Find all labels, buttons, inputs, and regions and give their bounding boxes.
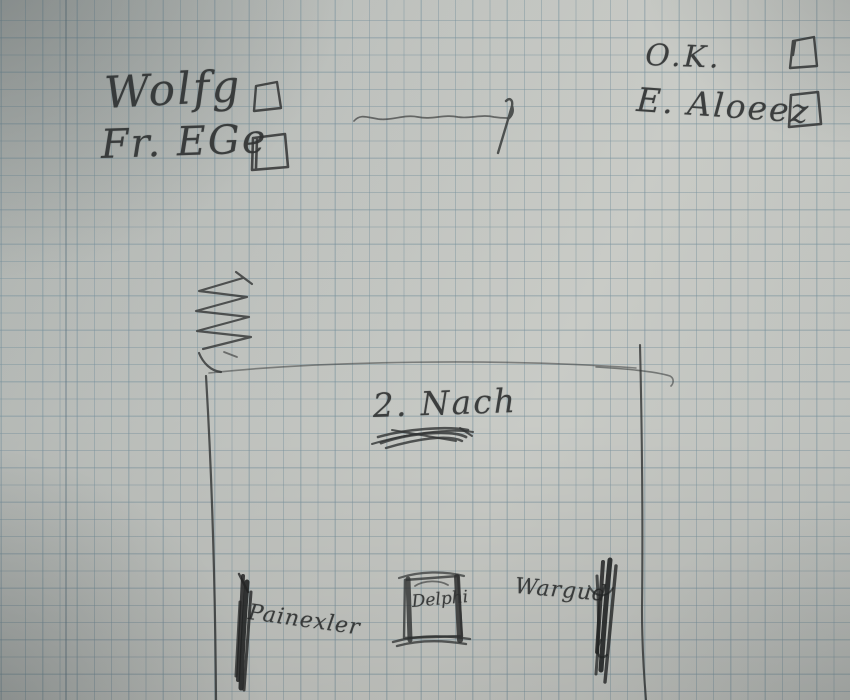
plan-right-edge	[640, 345, 646, 700]
wavy-arrow-line	[354, 116, 507, 121]
pencil-sketch-layer	[0, 0, 850, 700]
left-heavy-scribble	[236, 574, 251, 690]
plan-top-edge-extension	[596, 367, 673, 386]
crossed-out-word-scribble	[372, 428, 473, 448]
checkbox-icon	[252, 134, 288, 170]
paper-photo: Wolfg Fr. EGe O.K. E. Aloeez 2. Nach Pai…	[0, 0, 850, 700]
zigzag-scribble	[196, 272, 252, 372]
checkbox-icon	[789, 92, 821, 127]
right-heavy-scribble	[589, 560, 616, 682]
delphi-box	[393, 572, 470, 646]
checkbox-icon	[254, 82, 281, 111]
plan-corner-tick	[224, 352, 237, 357]
plan-left-edge	[206, 376, 216, 700]
checkbox-icon	[790, 37, 817, 68]
wavy-arrow-head-icon	[498, 99, 513, 153]
plan-top-edge	[209, 362, 636, 373]
